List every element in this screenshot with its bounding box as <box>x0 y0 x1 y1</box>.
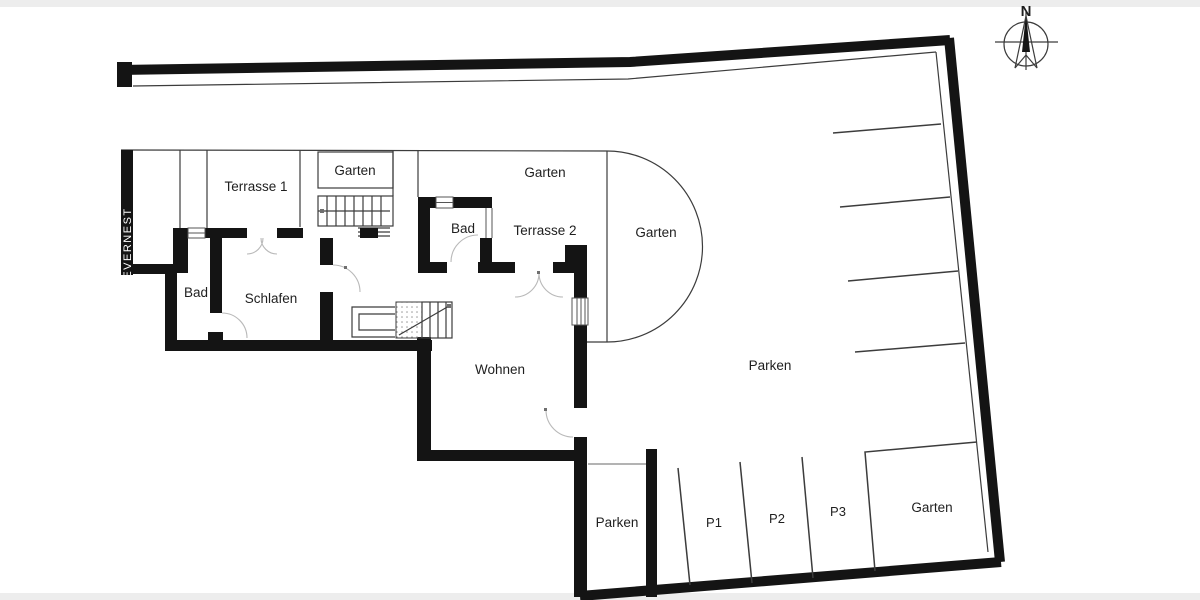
label-bad-east: Bad <box>451 221 475 236</box>
label-terrasse1: Terrasse 1 <box>224 179 287 194</box>
boundary-wall-right <box>949 38 1000 562</box>
stall-divider-p1-left <box>678 468 690 585</box>
window-living-east <box>572 298 588 325</box>
boundary-wall-top-endcap <box>117 62 132 87</box>
compass-north-label: N <box>1021 3 1032 20</box>
label-garten-east: Garten <box>635 225 676 240</box>
stairs-upper-start-dot <box>320 209 324 213</box>
stairs-lower-void <box>396 302 422 338</box>
stall-divider-4 <box>855 343 965 352</box>
door-arc-bad-east <box>451 235 478 262</box>
wall-top-a <box>205 228 247 238</box>
living-north-wall-a <box>418 262 447 273</box>
label-schlafen: Schlafen <box>245 291 298 306</box>
label-stall-p1: P1 <box>706 515 722 530</box>
stairs-lower-end-dot <box>447 304 451 308</box>
stall-divider-1 <box>833 124 941 133</box>
door-arc-bad-west <box>222 313 247 338</box>
window-terrace1 <box>188 228 205 238</box>
exterior-wall-south-bedroom <box>165 340 432 351</box>
label-wohnen: Wohnen <box>475 362 525 377</box>
window-bad-east <box>436 197 453 208</box>
label-terrasse2: Terrasse 2 <box>513 223 576 238</box>
wall-stub-terrace1 <box>173 228 188 273</box>
stall-divider-3 <box>848 271 958 281</box>
bad-west-east-wall <box>210 238 222 313</box>
bad-east-north-wall <box>418 197 492 208</box>
label-parken-main: Parken <box>749 358 792 373</box>
small-parking-east-wall <box>646 449 657 597</box>
label-stall-p3: P3 <box>830 504 846 519</box>
site-boundary-walls <box>117 38 1001 596</box>
bad-west-door-stub <box>208 332 223 341</box>
bedroom-east-wall-upper <box>320 238 333 265</box>
stall-divider-2 <box>840 197 950 207</box>
closet-outline <box>352 307 395 337</box>
compass: N <box>995 3 1058 70</box>
door-arc-terrace2-left <box>515 273 539 297</box>
floor-plan: N Terrasse 1 Garten Garten Terrasse 2 Ga… <box>0 0 1200 600</box>
boundary-wall-bottom <box>580 562 1001 596</box>
bedroom-east-wall-lower <box>320 292 333 351</box>
exterior-wall-west-lower <box>165 273 177 348</box>
living-south-wall <box>417 450 583 461</box>
evernest-watermark: EVERNEST <box>122 207 134 278</box>
door-arc-entrance <box>546 410 573 437</box>
door-arc-bedroom <box>333 265 360 292</box>
stall-divider-p2-p3 <box>802 457 813 578</box>
label-stall-p2: P2 <box>769 511 785 526</box>
east-wall-mid <box>574 325 587 408</box>
wall-top-c <box>360 228 378 238</box>
stairs-lower <box>352 302 452 338</box>
door-arc-terrace1-right <box>261 238 277 254</box>
label-garten-upper-left: Garten <box>334 163 375 178</box>
stairs-upper <box>318 196 393 236</box>
label-garten-southeast: Garten <box>911 500 952 515</box>
label-parken-small: Parken <box>596 515 639 530</box>
door-arc-terrace1-left <box>247 238 263 254</box>
door-arc-terrace2-right <box>539 273 563 297</box>
label-garten-top: Garten <box>524 165 565 180</box>
east-wall-upper <box>574 245 587 298</box>
living-west-wall <box>417 337 431 461</box>
letterbox-bands <box>0 0 1200 600</box>
floor-plan-page: N Terrasse 1 Garten Garten Terrasse 2 Ga… <box>0 0 1200 600</box>
garden-top-line <box>121 150 607 151</box>
terrace2-west-stub <box>480 238 492 271</box>
parking-stall-dividers-east <box>833 124 965 352</box>
label-bad-west: Bad <box>184 285 208 300</box>
wall-top-b <box>277 228 303 238</box>
stall-divider-p1-p2 <box>740 462 752 583</box>
window-bad-terrace2 <box>486 208 492 238</box>
garden-arc <box>607 151 703 342</box>
boundary-wall-top <box>121 40 950 70</box>
